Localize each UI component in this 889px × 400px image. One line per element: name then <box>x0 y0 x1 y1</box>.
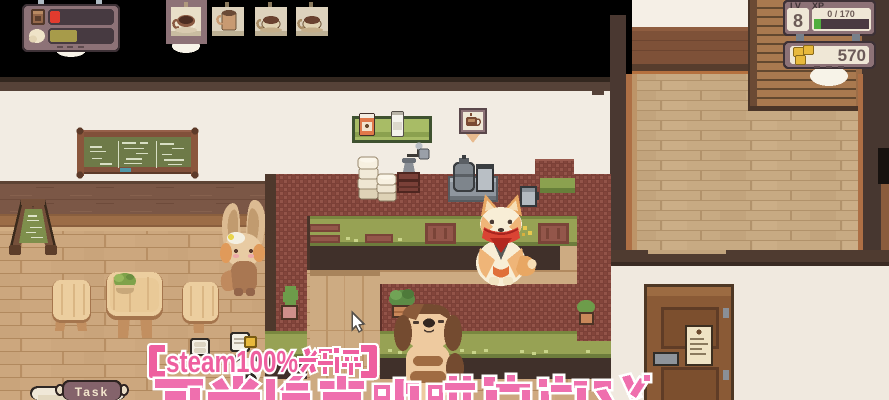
svg-text:0 / 170: 0 / 170 <box>827 9 855 19</box>
svg-text:570: 570 <box>838 46 866 65</box>
svg-text:Task: Task <box>75 385 109 399</box>
svg-text:8: 8 <box>793 11 803 31</box>
